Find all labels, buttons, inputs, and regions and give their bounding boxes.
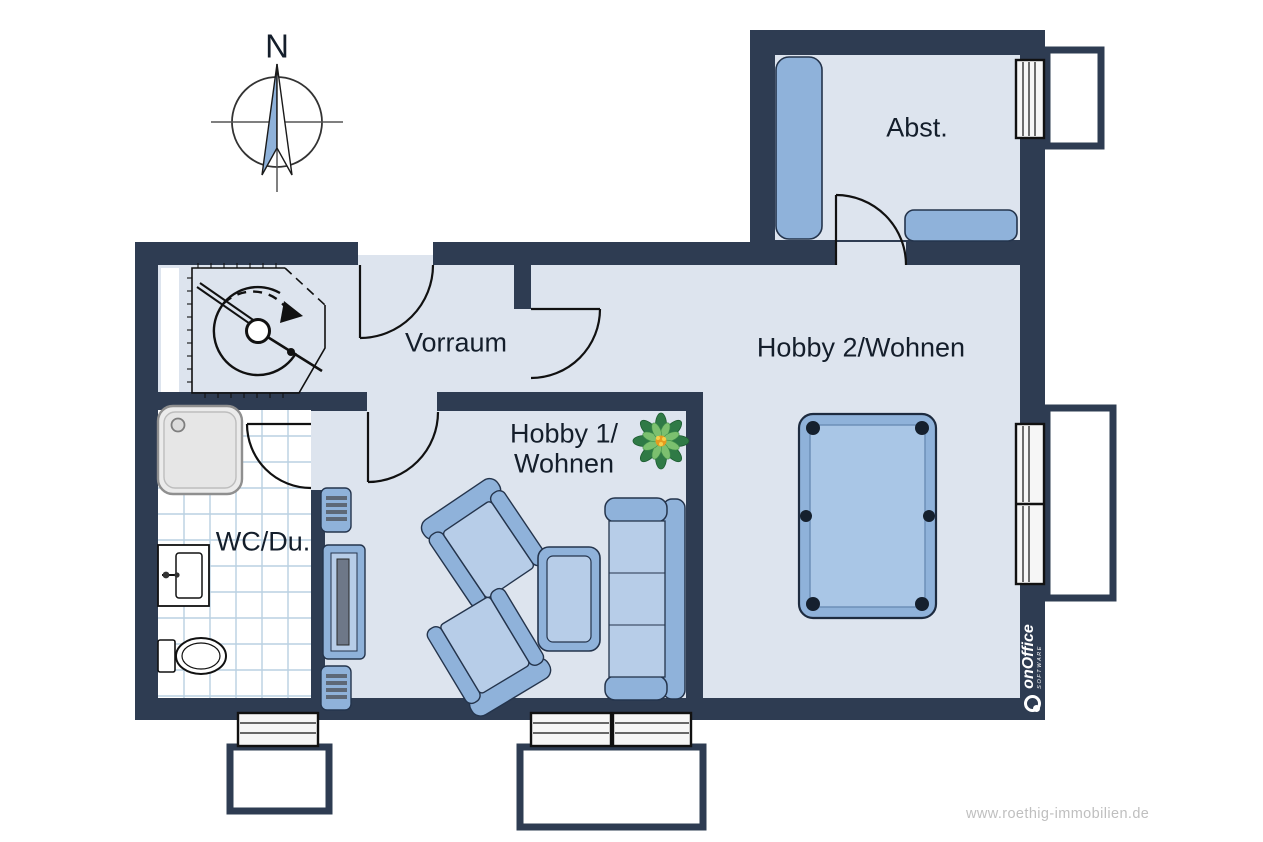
lightwell-hobby2 xyxy=(1047,408,1113,598)
room-label-hobby1-line1: Hobby 1/ xyxy=(510,419,618,450)
shower-icon xyxy=(158,406,242,494)
plant-icon xyxy=(633,413,689,469)
window-wc xyxy=(238,713,318,746)
lightwell-wc xyxy=(230,747,329,811)
onoffice-logo: onOffice SOFTWARE xyxy=(1018,611,1046,725)
coffee-table-icon xyxy=(538,547,600,651)
wardrobe-icon xyxy=(776,57,822,239)
window-hobby2 xyxy=(1016,424,1044,584)
window-hobby1 xyxy=(531,713,691,746)
entrance-opening xyxy=(358,242,433,255)
left-wall-window xyxy=(161,268,179,392)
room-label-vorraum: Vorraum xyxy=(405,328,507,359)
room-label-wc: WC/Du. xyxy=(216,527,311,558)
watermark-url: www.roethig-immobilien.de xyxy=(966,806,1156,822)
room-label-hobby2: Hobby 2/Wohnen xyxy=(757,333,965,364)
billiard-table-icon xyxy=(799,414,936,618)
compass-north-label: N xyxy=(265,31,289,62)
floorplan-page: N Abst. Vorraum Hobby 2/Wohnen Hobby 1/ … xyxy=(0,0,1263,842)
floorplan-drawing xyxy=(0,0,1263,842)
sideboard-icon xyxy=(905,210,1017,241)
toilet-icon xyxy=(158,638,226,674)
room-label-abst: Abst. xyxy=(886,113,948,144)
sink-icon xyxy=(158,545,209,606)
onoffice-logo-text: onOffice xyxy=(1021,624,1037,689)
window-abst xyxy=(1016,60,1044,138)
room-label-hobby1-line2: Wohnen xyxy=(514,449,614,480)
abst-door-opening xyxy=(836,242,906,265)
lightwell-hobby1 xyxy=(520,747,703,827)
onoffice-logo-icon xyxy=(1024,695,1041,712)
sofa-icon xyxy=(605,498,685,700)
compass-rose-icon xyxy=(211,64,343,192)
lightwell-abst xyxy=(1047,50,1101,146)
entrance-threshold xyxy=(358,255,433,265)
onoffice-logo-subtext: SOFTWARE xyxy=(1038,624,1044,689)
